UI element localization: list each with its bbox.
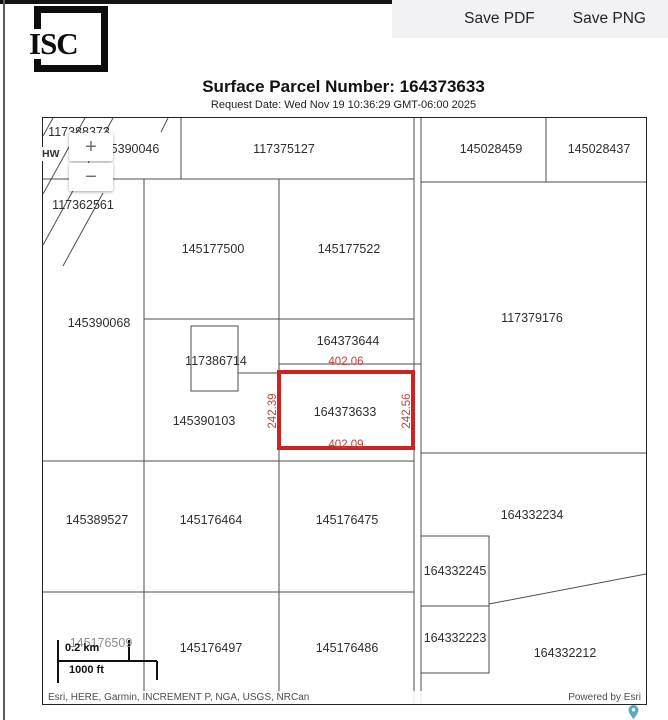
map-attribution: Esri, HERE, Garmin, INCREMENT P, NGA, US… — [43, 691, 646, 704]
window-left-edge — [3, 0, 5, 720]
parcel-label-145176464: 145176464 — [180, 513, 243, 527]
measurement-left: 242.39 — [267, 393, 279, 428]
window-top-edge — [0, 0, 394, 4]
parcel-label-145176486: 145176486 — [316, 641, 379, 655]
parcel-label-145028437: 145028437 — [568, 142, 631, 156]
parcel-label-164332212: 164332212 — [534, 646, 597, 660]
parcel-label-145177522: 145177522 — [318, 242, 381, 256]
parcel-label-145390103: 145390103 — [173, 414, 236, 428]
parcel-label-145389527: 145389527 — [66, 513, 129, 527]
parcel-label-117375127: 117375127 — [253, 142, 315, 156]
measurement-right: 242.56 — [401, 393, 413, 428]
attribution-sources: Esri, HERE, Garmin, INCREMENT P, NGA, US… — [48, 692, 309, 703]
parcel-label-145176475: 145176475 — [316, 513, 379, 527]
parcel-label-145176497: 145176497 — [180, 641, 243, 655]
highlighted-parcel-label: 164373633 — [314, 405, 377, 419]
zoom-control: + − — [69, 133, 113, 193]
measurement-top: 402.06 — [328, 356, 363, 368]
powered-by-esri: Powered by Esri — [568, 692, 641, 703]
isc-logo-text: ISC — [27, 29, 82, 59]
parcel-map[interactable]: 1173883735390046117362561117375127145028… — [42, 117, 647, 705]
scale-km-label: 0.2 km — [65, 642, 99, 654]
location-pin-icon — [628, 705, 639, 719]
parcel-label-164332245: 164332245 — [424, 564, 487, 578]
parcel-label-164373644: 164373644 — [317, 334, 380, 348]
request-date: Request Date: Wed Nov 19 10:36:29 GMT-06… — [42, 99, 645, 111]
parcel-label-145028459: 145028459 — [460, 142, 523, 156]
measurement-bottom: 402.09 — [328, 439, 363, 451]
parcel-label-117386714: 117386714 — [185, 354, 247, 368]
zoom-in-button[interactable]: + — [69, 133, 113, 161]
parcel-label-117379176: 117379176 — [501, 311, 563, 325]
page: ISC Save PDF Save PNG Surface Parcel Num… — [0, 0, 668, 720]
page-title: Surface Parcel Number: 164373633 — [42, 77, 645, 97]
parcel-label-117362561: 117362561 — [52, 198, 114, 212]
highway-label: HW — [41, 147, 61, 161]
save-png-button[interactable]: Save PNG — [571, 8, 648, 30]
save-panel: Save PDF Save PNG — [392, 0, 668, 38]
parcel-label-145390068: 145390068 — [68, 316, 131, 330]
parcel-label-145177500: 145177500 — [182, 242, 245, 256]
save-pdf-button[interactable]: Save PDF — [462, 8, 537, 30]
parcel-label-164332234: 164332234 — [501, 508, 564, 522]
parcel-label-5390046: 5390046 — [111, 142, 160, 156]
parcel-label-164332223: 164332223 — [424, 631, 487, 645]
zoom-out-button[interactable]: − — [69, 163, 113, 191]
map-canvas-labels: 1173883735390046117362561117375127145028… — [43, 118, 646, 704]
scale-ft-label: 1000 ft — [69, 664, 104, 676]
